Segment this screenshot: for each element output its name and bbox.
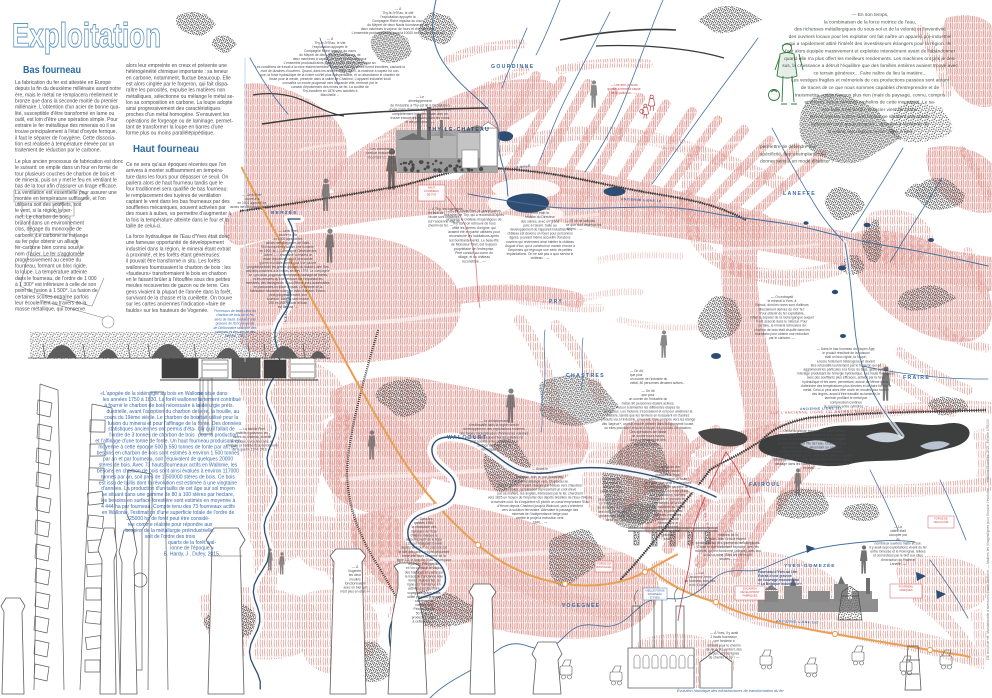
svg-text:traitement de réduction par le: traitement de réduction par le carbone.	[15, 148, 101, 154]
svg-text:alors leur empreinte en creux: alors leur empreinte en creux et présent…	[126, 63, 227, 69]
svg-text:« La Belgique industrielle »: « La Belgique industrielle »	[758, 582, 802, 586]
svg-text:sur les cartes anciennes l'ind: sur les cartes anciennes l'indication «f…	[126, 302, 226, 308]
svg-text:GE circuit de réf. Mandelmobil: GE circuit de réf. Mandelmobile d'aventu…	[986, 419, 990, 660]
svg-text:de chemin de fer ! —: de chemin de fer ! —	[709, 656, 740, 660]
svg-text:à proximité, et les forêts éta: à proximité, et les forêts étant généreu…	[126, 252, 221, 258]
svg-text:important ici... —: important ici... —	[367, 155, 393, 159]
svg-text:PRY: PRY	[549, 299, 563, 305]
svg-text:est déposé. —: est déposé. —	[278, 305, 299, 309]
svg-text:bas de la tour afin d'assurer: bas de la tour afin d'assurer un tirage …	[15, 184, 117, 190]
svg-text:une fameuse opportunité de dév: une fameuse opportunité de développement	[126, 240, 224, 246]
svg-text:ainsi progressivement des cara: ainsi progressivement des caractéristiqu…	[126, 106, 221, 112]
svg-text:FOURNEAU: FOURNEAU	[424, 189, 439, 193]
svg-text:tiellement ceux qui pourraient: tiellement ceux qui pourraient... devaie…	[811, 122, 929, 128]
svg-text:faulds» sur les hauteurs de Vo: faulds» sur les hauteurs de Vogenée.	[126, 308, 209, 314]
svg-text:il pouvait être transformé in: il pouvait être transformé in situ. Les …	[126, 259, 221, 265]
svg-text:opérations de forgeage ou de l: opérations de forgeage ou de laminage, p…	[126, 118, 233, 124]
svg-text:permettre de défendre leur: permettre de défendre leur	[760, 144, 817, 150]
svg-text:transmettre : nous n'avons plu: transmettre : nous n'avons plus rien (ma…	[795, 92, 946, 98]
svg-text:Exploitation: Exploitation	[12, 17, 161, 55]
svg-text:dans le fourneau, de l'ordre d: dans le fourneau, de l'ordre de 1 000	[15, 276, 97, 282]
svg-text:la fois la température atteint: la fois la température atteinte dans le …	[126, 217, 229, 223]
svg-text:LANEFFE: LANEFFE	[783, 191, 816, 197]
svg-text:B. Hardy, J . Dufey, 2015.: B. Hardy, J . Dufey, 2015.	[164, 552, 221, 558]
svg-text:château... —: château... —	[531, 256, 550, 260]
svg-text:dirigés... —: dirigés... —	[566, 227, 583, 231]
svg-text:HAUT: HAUT	[428, 186, 435, 190]
svg-text:nom d'acier. Le fer s'agglomèr: nom d'acier. Le fer s'agglomère	[15, 251, 85, 257]
svg-text:Haut fourneau: Haut fourneau	[133, 143, 199, 155]
svg-text:VIEILLE FORGE: VIEILLE FORGE	[645, 589, 665, 593]
svg-text:industriel dans la région, le: industriel dans la région, le minerai ét…	[126, 246, 231, 252]
svg-text:de la guerre 1914-1918. —: de la guerre 1914-1918. —	[232, 448, 272, 452]
svg-text:four traditionnel sera qualifi: four traditionnel sera qualifié de bas f…	[126, 187, 228, 193]
svg-text:lon sa composition en carbone.: lon sa composition en carbone. La loupe …	[126, 100, 233, 106]
svg-text:montée en température suffisan: montée en température suffisante, et l'o…	[15, 196, 106, 202]
svg-text:point de fusion à 1 500°. La f: point de fusion à 1 500°. La fusion de	[15, 288, 98, 294]
svg-text:en aval... —: en aval... —	[803, 466, 821, 470]
svg-text:FORGE DE: FORGE DE	[934, 517, 948, 521]
svg-text:spécificité, leur exemplarité,: spécificité, leur exemplarité, à	[760, 151, 824, 157]
svg-text:La ventilation est essentielle: La ventilation est essentielle pour assu…	[15, 190, 117, 196]
svg-text:la valeur aux régions recon-: la valeur aux régions recon- (des, à leu…	[828, 129, 913, 135]
svg-text:NEUVCOUR: NEUVCOUR	[934, 520, 949, 524]
svg-text:1840... —: 1840... —	[533, 520, 548, 524]
svg-text:au passage entre cylindres. —: au passage entre cylindres. —	[824, 404, 869, 408]
svg-text:lité, susceptible d'être trans: lité, susceptible d'être transformé en l…	[15, 111, 115, 117]
svg-text:et les prénoms... —: et les prénoms... —	[405, 120, 435, 124]
svg-text:n'est plus en état. —: n'est plus en état. —	[340, 590, 371, 594]
svg-text:arrivera à monter suffisamment: arrivera à monter suffisamment en tempér…	[126, 168, 224, 174]
svg-text:la combinaison de la force mot: la combinaison de la force motrice de l'…	[824, 19, 916, 25]
svg-text:fer-carbone bien connu sous le: fer-carbone bien connu sous le	[15, 245, 84, 251]
svg-text:souffleries mécaniques, souven: souffleries mécaniques, souvent activées…	[126, 205, 226, 211]
svg-text:Le plus ancien processus de fa: Le plus ancien processus de fabrication …	[15, 159, 124, 165]
svg-text:par le carbone. —: par le carbone. —	[769, 336, 796, 340]
svg-text:voir-faire s'est perdu, et l'a: voir-faire s'est perdu, et l'acier vient…	[821, 107, 918, 113]
svg-text:usines métallurgiques de Saint: usines métallurgiques de Saint-	[230, 205, 274, 209]
svg-text:brûlant dans un environnement: brûlant dans un environnement	[15, 221, 85, 227]
svg-text:DE THY: DE THY	[427, 192, 437, 196]
svg-text:des richesses métallurgiques d: des richesses métallurgiques du sous-sol…	[794, 27, 946, 33]
svg-text:FRAIRE: FRAIRE	[903, 375, 930, 381]
svg-text:bronze que dans la seconde moi: bronze que dans la seconde moitié du pre…	[15, 98, 118, 104]
svg-text:extraire le fer métallique des: extraire le fer métallique des minerais …	[15, 123, 116, 129]
svg-text:ce terrain généreux... Faire n: ce terrain généreux... Faire naître du l…	[813, 70, 926, 76]
svg-text:reconstitué... —: reconstitué... —	[462, 259, 486, 263]
svg-text:FAIROUL: FAIROUL	[749, 482, 781, 488]
svg-text:Ce ne sera qu'aux époques réce: Ce ne sera qu'aux époques récentes que l…	[126, 162, 227, 168]
svg-text:FOURNEAU: FOURNEAU	[899, 585, 914, 589]
svg-text:raître les porosités, expulse: raître les porosités, expulse les matièr…	[126, 88, 225, 94]
svg-text:chemin de fer. —: chemin de fer. —	[428, 223, 454, 227]
svg-text:Bas fourneau: Bas fourneau	[23, 64, 81, 76]
svg-text:met. Le charbon de bois,: met. Le charbon de bois,	[15, 214, 70, 220]
svg-text:tant de transformer la loupe e: tant de transformer la loupe en barres d…	[126, 125, 223, 131]
svg-text:fourneau, formant un bloc rigi: fourneau, formant un bloc rigide,	[15, 264, 87, 270]
svg-text:tion est réalisée à températur: tion est réalisée à température élevée p…	[15, 142, 114, 148]
svg-text:train...: train...	[664, 537, 673, 541]
svg-text:«faudeurs» transformaient le b: «faudeurs» transformaient le bois en cha…	[126, 271, 227, 277]
svg-text:de minerai, puis on y met le f: de minerai, puis on y met le feu en vent…	[15, 177, 117, 183]
svg-text:paysages locaux....: paysages locaux....	[634, 442, 662, 446]
svg-text:de là. —: de là. —	[606, 518, 619, 522]
svg-text:le suivant: on empile dans un: le suivant: on empile dans un four en fo…	[15, 165, 118, 171]
svg-text:Est-ce que les contre-faire lo: Est-ce que les contre-faire locaux ne se…	[810, 114, 931, 120]
svg-text:Évolution historique des infra: Évolution historique des infrastructures…	[677, 688, 785, 693]
svg-text:meules recouvertes de gazon ou: meules recouvertes de gazon ou de terre.…	[126, 283, 229, 289]
svg-text:taille de celui-ci.: taille de celui-ci.	[126, 224, 162, 230]
svg-text:progressivement au centre du: progressivement au centre du	[15, 257, 81, 263]
svg-text:trouve principalement à l'état: trouve principalement à l'état d'oxyde f…	[15, 129, 117, 135]
svg-text:sus, la croissance a détruit l: sus, la croissance a détruit l'équilibre…	[782, 63, 958, 69]
svg-text:struites... —: struites... —	[719, 557, 737, 561]
svg-text:— En son temps,: — En son temps,	[852, 12, 889, 18]
svg-text:en le faisant brûler à l'étouf: en le faisant brûler à l'étouffée sous d…	[126, 277, 231, 283]
svg-text:ère, mais le métal ne remplace: ère, mais le métal ne remplacera réellem…	[15, 92, 118, 98]
svg-text:et choyé). Nous sommes orpheli: et choyé). Nous sommes orphelins de cett…	[805, 100, 936, 106]
svg-text:remarquable... —: remarquable... —	[481, 448, 507, 452]
svg-text:depuis la fin du deuxième mill: depuis la fin du deuxième millénaire ava…	[15, 86, 121, 92]
svg-text:l'ont alors équipée massivemen: l'ont alors équipée massivement et explo…	[785, 49, 956, 55]
svg-text:VOGEGNÉE: VOGEGNÉE	[562, 601, 600, 609]
svg-text:forme plus ou moins parallélép: forme plus ou moins parallélépipédique.	[126, 131, 214, 137]
svg-text:FORGE DU: FORGE DU	[597, 562, 611, 566]
svg-text:THY-LE-CHATEAU: THY-LE-CHATEAU	[428, 127, 490, 133]
svg-text:gens vivaient la plupart de l': gens vivaient la plupart de l'année dans…	[126, 289, 232, 295]
svg-text:le vent, si la région le per-: le vent, si la région le per-	[15, 208, 73, 214]
svg-text:tour plusieurs couches de char: tour plusieurs couches de charbon de boi…	[15, 171, 115, 177]
svg-text:la loupe. La température attei: la loupe. La température atteinte	[15, 270, 87, 276]
svg-text:GOURDINNE: GOURDINNE	[491, 64, 534, 70]
svg-text:utilisera soit des soufflets,: utilisera soit des soufflets, soit	[15, 202, 82, 208]
svg-text:est alors cinglée par le forge: est alors cinglée par le forgeron, qui f…	[126, 81, 229, 87]
svg-text:au fer pour obtenir un alliage: au fer pour obtenir un alliage	[15, 239, 79, 245]
svg-text:MARQUES: MARQUES	[899, 588, 912, 592]
svg-text:Laneffe. —: Laneffe. —	[890, 562, 907, 566]
svg-text:CHASTRES: CHASTRES	[566, 373, 605, 379]
svg-text:ROIVOGNAL: ROIVOGNAL	[596, 565, 612, 569]
svg-text:des ouvriers locaux pour les e: des ouvriers locaux pour les exploiter o…	[789, 34, 952, 40]
svg-text:donner sens à un mode d'habite: donner sens à un mode d'habiter ? —	[760, 159, 840, 165]
svg-text:certaines scories entraîne par: certaines scories entraîne parfois	[15, 294, 89, 300]
svg-text:Marcinelle ...: Marcinelle ...	[321, 93, 340, 97]
svg-text:de la pollution... —: de la pollution... —	[611, 91, 638, 95]
svg-text:ture dans les fours pour dépas: ture dans les fours pour dépasser ce seu…	[126, 174, 228, 180]
svg-text:masse métallique, qui conserve: masse métallique, qui conserve	[15, 307, 85, 313]
svg-text:D'YVES: D'YVES	[650, 595, 660, 599]
svg-text:wallonnes fournissaient le cha: wallonnes fournissaient le charbon de bo…	[126, 265, 231, 271]
svg-text:qui a rapidement attiré l'inté: qui a rapidement attiré l'intérêt des in…	[789, 41, 952, 47]
svg-text:parlera alors de haut fourneau: parlera alors de haut fourneau tandis qu…	[126, 180, 223, 186]
svg-text:La fabrication du fer est atte: La fabrication du fer est attestée en Eu…	[15, 80, 111, 86]
svg-text:en carbone, notamment, fluctue: en carbone, notamment, fluctue beaucoup.…	[126, 75, 231, 81]
svg-text:ESCAVADA: ESCAVADA	[743, 587, 757, 591]
svg-text:La force hydraulique de l'Eau: La force hydraulique de l'Eau d'Yves éta…	[126, 234, 230, 240]
svg-text:outil, est loin d'être une opé: outil, est loin d'être une opération sim…	[15, 117, 118, 123]
svg-text:métal, 80 personnes devaient a: métal, 80 personnes devaient actives...	[630, 381, 685, 385]
svg-text:Les vestiges fragiles et mémor: Les vestiges fragiles et mémoriels de ce…	[791, 78, 950, 84]
svg-text:FABRIQUES: FABRIQUES	[743, 593, 758, 597]
svg-text:il faut le séparer de l'oxygèn: il faut le séparer de l'oxygène. Cette d…	[15, 135, 116, 141]
svg-text:survivant de la chasse et la c: survivant de la chasse et la cueillette.…	[126, 296, 232, 302]
svg-text:FOURNEAU: FOURNEAU	[648, 592, 663, 596]
svg-text:de traces de ce que nous somme: de traces de ce que nous sommes capables…	[801, 85, 940, 91]
svg-text:captant le vent dans les bas f: captant le vent dans les bas fourneaux p…	[126, 199, 230, 205]
svg-text:millénaire. L'obtention d'un a: millénaire. L'obtention d'un acier de bo…	[15, 105, 120, 111]
svg-text:des roues à aubes, va permettr: des roues à aubes, va permettre d'augmen…	[126, 211, 231, 217]
svg-text:proches d'un métal homogène. S: proches d'un métal homogène. S'ensuivent…	[126, 112, 230, 118]
svg-text:carbone. Le carbone se mélange: carbone. Le carbone se mélange	[15, 233, 88, 239]
svg-text:L'ensemble produisait alors ju: L'ensemble produisait alors jusqu'à 1000…	[352, 31, 445, 35]
svg-text:hétérogénéité chimique importa: hétérogénéité chimique importante : sa t…	[126, 69, 228, 75]
svg-text:à 1 300° est inférieure à cell: à 1 300° est inférieure à celle de son	[15, 282, 96, 288]
svg-text:le remplacement des tuyères de: le remplacement des tuyères de ventilati…	[126, 193, 221, 199]
svg-text:métiers, 1751: métiers, 1751	[225, 334, 246, 338]
svg-text:clos, dégage du monoxyde de: clos, dégage du monoxyde de	[15, 227, 82, 233]
svg-text:à cette ligne. —: à cette ligne. —	[413, 620, 437, 624]
svg-text:croix d'outils. —: croix d'outils. —	[689, 583, 712, 587]
svg-text:métalliques, sélectionne ou mé: métalliques, sélectionne ou mélange le m…	[126, 94, 234, 100]
svg-text:quand elle n'a plus offert les: quand elle n'a plus offert les meilleurs…	[784, 56, 956, 62]
svg-text:leur écoulement au travers de: leur écoulement au travers de la	[15, 300, 87, 306]
